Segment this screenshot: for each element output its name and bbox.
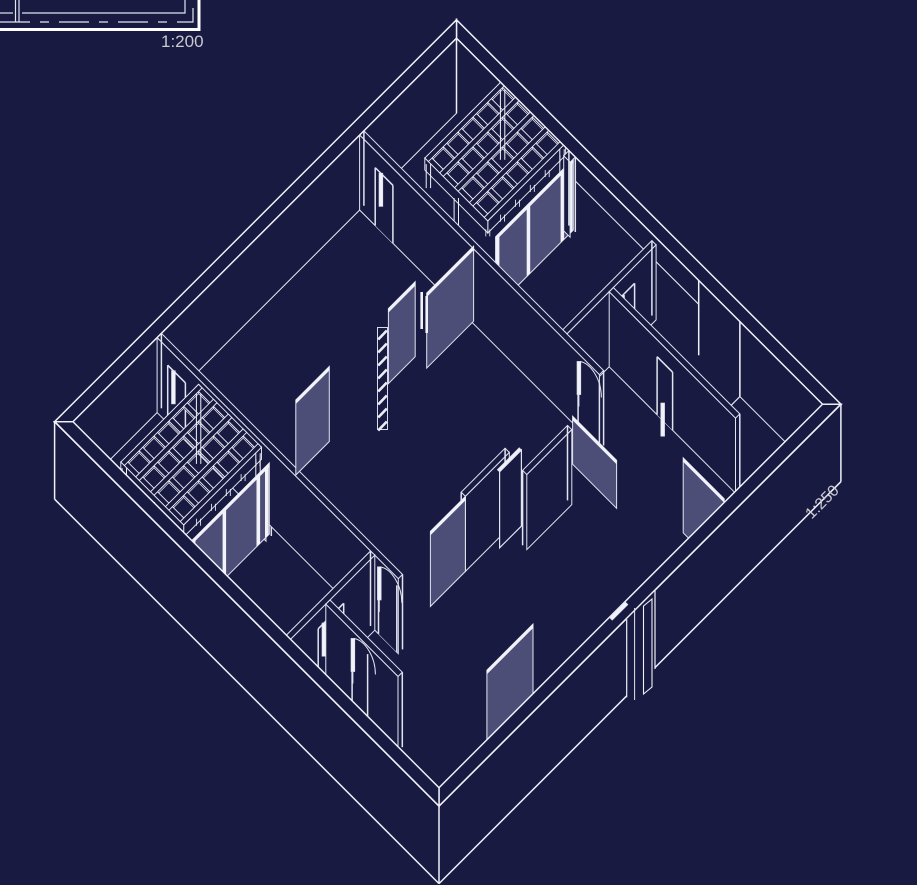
svg-text:1:200: 1:200 — [161, 32, 204, 51]
